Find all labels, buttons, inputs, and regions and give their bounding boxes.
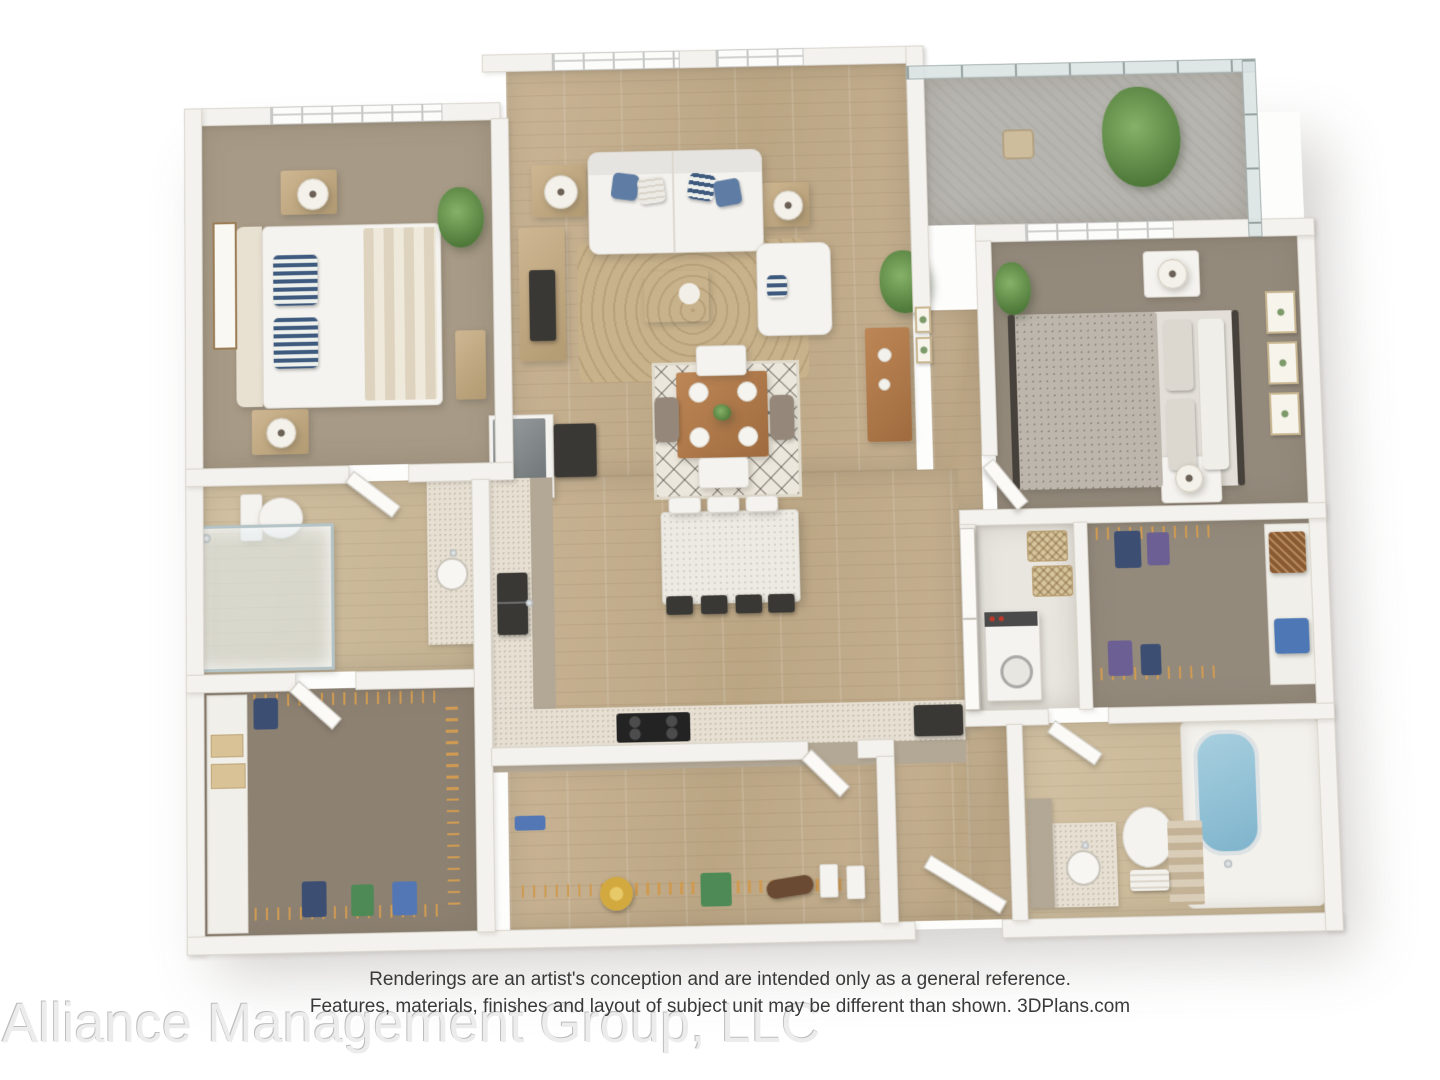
island-chair-1 [668, 497, 701, 514]
bedroom-2-window [1025, 220, 1174, 241]
dresser-bedroom1 [455, 330, 486, 400]
island-stool-4 [768, 594, 795, 613]
tv [529, 270, 556, 341]
tub-tile-steps [1167, 820, 1205, 905]
wall-oven [554, 423, 597, 477]
closet-1-clothes-blue [392, 881, 417, 915]
laundry-basket-2 [1032, 565, 1074, 597]
sofa-pillow-white [636, 175, 666, 205]
sofa-pillow-blue-2 [712, 177, 742, 207]
sofa-pillow-blue-1 [611, 172, 640, 201]
wall-art-sign [213, 222, 238, 350]
kitchen-sink [497, 573, 528, 636]
closet-2-clothes-3 [1108, 640, 1134, 676]
closet-1-hangers-right [446, 707, 461, 913]
laundry-basket-1 [1027, 530, 1069, 562]
green-bag [700, 872, 732, 906]
wall-bath1-closet1-a [186, 673, 296, 694]
bedroom-2-art-1 [1265, 291, 1297, 334]
wall-left-exterior [184, 108, 205, 955]
shower [194, 523, 335, 673]
laundry-door-upper [959, 528, 977, 619]
kitchen-island [660, 509, 800, 605]
balcony-chair-1 [1002, 129, 1035, 160]
dining-chair-top [696, 345, 747, 377]
closet-2-clothes-1 [1114, 531, 1142, 569]
washer-knob-1 [990, 616, 995, 621]
island-stool-3 [735, 594, 762, 613]
living-window-1 [552, 51, 680, 72]
dining-chair-right [769, 395, 794, 440]
bath-2-cabinet [1027, 798, 1055, 908]
hanging-shirt-1 [819, 864, 838, 898]
bedroom-1-window [270, 103, 442, 125]
bed-2-pillow-1 [1163, 319, 1194, 391]
balcony-floor [922, 71, 1248, 226]
closet-1-shelves [206, 694, 248, 934]
island-stool-2 [701, 595, 728, 614]
closet-1-box-1 [211, 734, 244, 758]
disclaimer-line-1: Renderings are an artist's conception an… [0, 969, 1440, 991]
wall-bath1-closet1-b [355, 669, 476, 690]
island-chair-3 [745, 495, 778, 512]
closet-2-blue-bin [1274, 618, 1310, 654]
bathtub [1192, 729, 1262, 856]
dining-chair-bottom [698, 457, 749, 489]
dining-chair-left [654, 397, 679, 442]
living-window-2 [715, 48, 803, 68]
bed-2-duvet [1014, 312, 1163, 490]
wall-bedroom1-bottom-b [408, 462, 514, 483]
closet-1-clothes-navy [302, 881, 327, 917]
dining-centerpiece [713, 404, 732, 421]
hanging-shirt-2 [846, 865, 865, 899]
closet-2-clothes-4 [1140, 644, 1162, 676]
bed-1-headboard [236, 226, 263, 407]
floorplan-rendering-page: { "disclaimer": { "line1": "Renderings a… [0, 0, 1440, 1080]
cooktop [616, 712, 690, 743]
island-stool-1 [666, 596, 693, 615]
closet-2-clothes-2 [1146, 532, 1170, 565]
bed-1-blanket [363, 227, 437, 401]
island-chair-2 [707, 496, 740, 513]
bed-1-pillow-1 [273, 255, 318, 306]
wall-bedroom1-bottom-a [185, 465, 349, 487]
bed-1-pillow-2 [273, 317, 318, 369]
closet-1-clothes-green [351, 884, 374, 916]
laundry-door-lower [962, 619, 980, 711]
wall-frame-hall-2 [915, 337, 932, 364]
toilet-2-towels [1130, 869, 1170, 891]
bedroom-2-art-2 [1267, 341, 1299, 384]
plant-bedroom1 [437, 187, 484, 248]
washer-knob-2 [999, 616, 1004, 621]
closet-1-box-2 [211, 763, 246, 789]
tub-faucet [1224, 860, 1233, 869]
wall-frame-hall-1 [915, 306, 932, 333]
hall-closet-jeans [515, 815, 546, 830]
floor-plan [100, 2, 1346, 960]
coffee-table [644, 271, 709, 323]
disclaimer-line-2: Features, materials, finishes and layout… [0, 996, 1440, 1018]
counter-left-cabinets [530, 477, 556, 730]
sofa-pillow-navy [686, 172, 716, 202]
bed-2-pillow-2 [1166, 398, 1197, 470]
dishwasher [914, 704, 964, 736]
armchair-pillow [767, 275, 788, 298]
bedroom-2-art-3 [1269, 392, 1301, 435]
closet-2-basket [1268, 531, 1306, 573]
closet-1-clothes-top [253, 698, 278, 730]
